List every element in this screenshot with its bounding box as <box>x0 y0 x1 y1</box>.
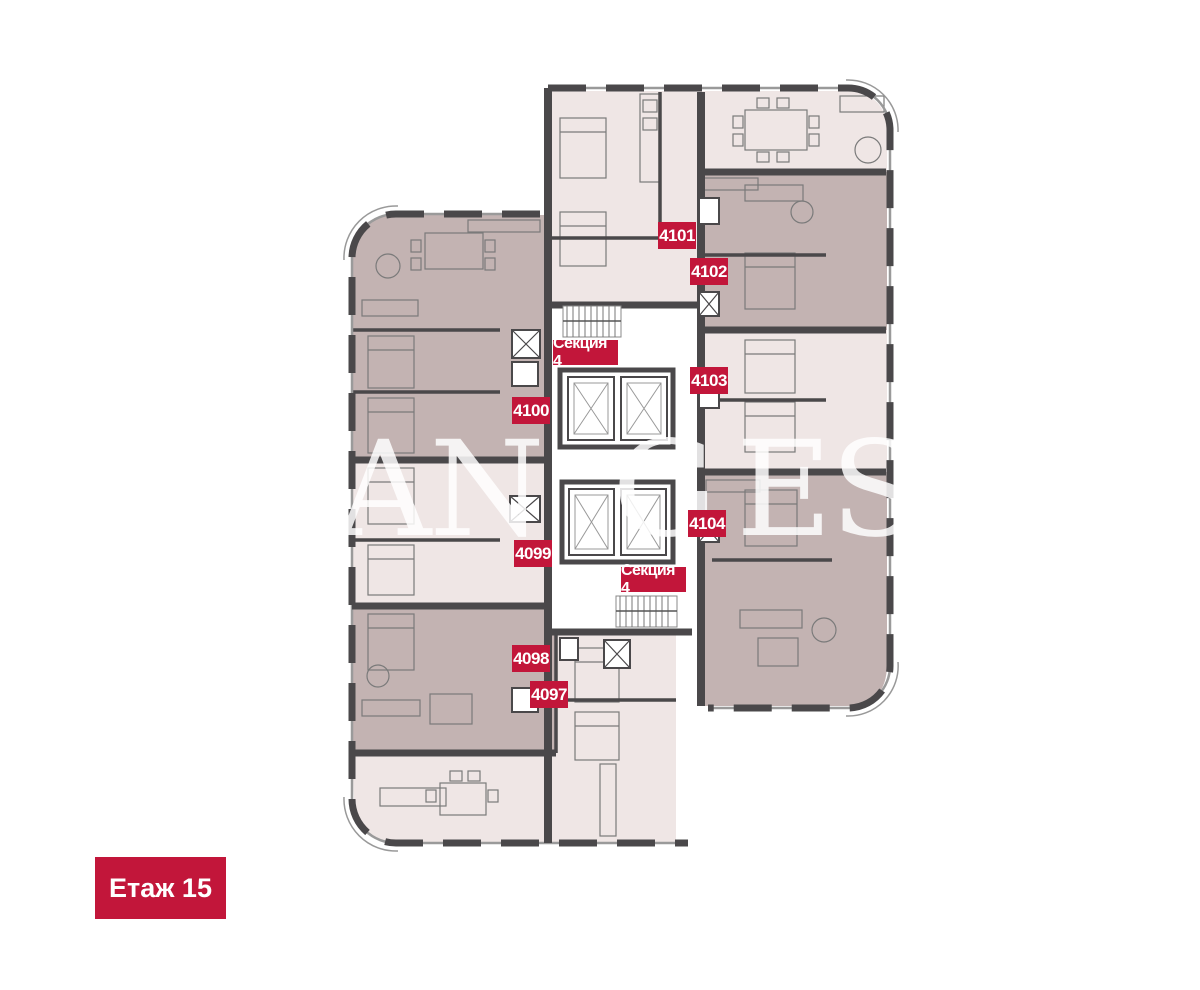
stairs-bottom <box>616 596 677 627</box>
floor-badge: Етаж 15 <box>95 857 226 919</box>
floorplan-page: AN G EST 4101 4102 4103 4104 4100 4099 4… <box>0 0 1200 990</box>
unit-badge-4102[interactable]: 4102 <box>690 258 728 285</box>
elevator-bank-bottom <box>562 482 673 562</box>
elevator-bank-top <box>560 370 673 447</box>
unit-badge-4103[interactable]: 4103 <box>690 367 728 394</box>
unit-badge-4101[interactable]: 4101 <box>658 222 696 249</box>
unit-badge-4104[interactable]: 4104 <box>688 510 726 537</box>
section-badge-bottom: Секция 4 <box>621 567 686 592</box>
floor-plan-drawing <box>0 0 1200 990</box>
unit-badge-4098[interactable]: 4098 <box>512 645 550 672</box>
unit-badge-4097[interactable]: 4097 <box>530 681 568 708</box>
unit-badge-4100[interactable]: 4100 <box>512 397 550 424</box>
section-badge-top: Секция 4 <box>553 340 618 365</box>
unit-4104-area[interactable] <box>701 472 887 706</box>
unit-badge-4099[interactable]: 4099 <box>514 540 552 567</box>
unit-4102-area[interactable] <box>701 172 887 330</box>
stairs-top <box>563 306 621 337</box>
